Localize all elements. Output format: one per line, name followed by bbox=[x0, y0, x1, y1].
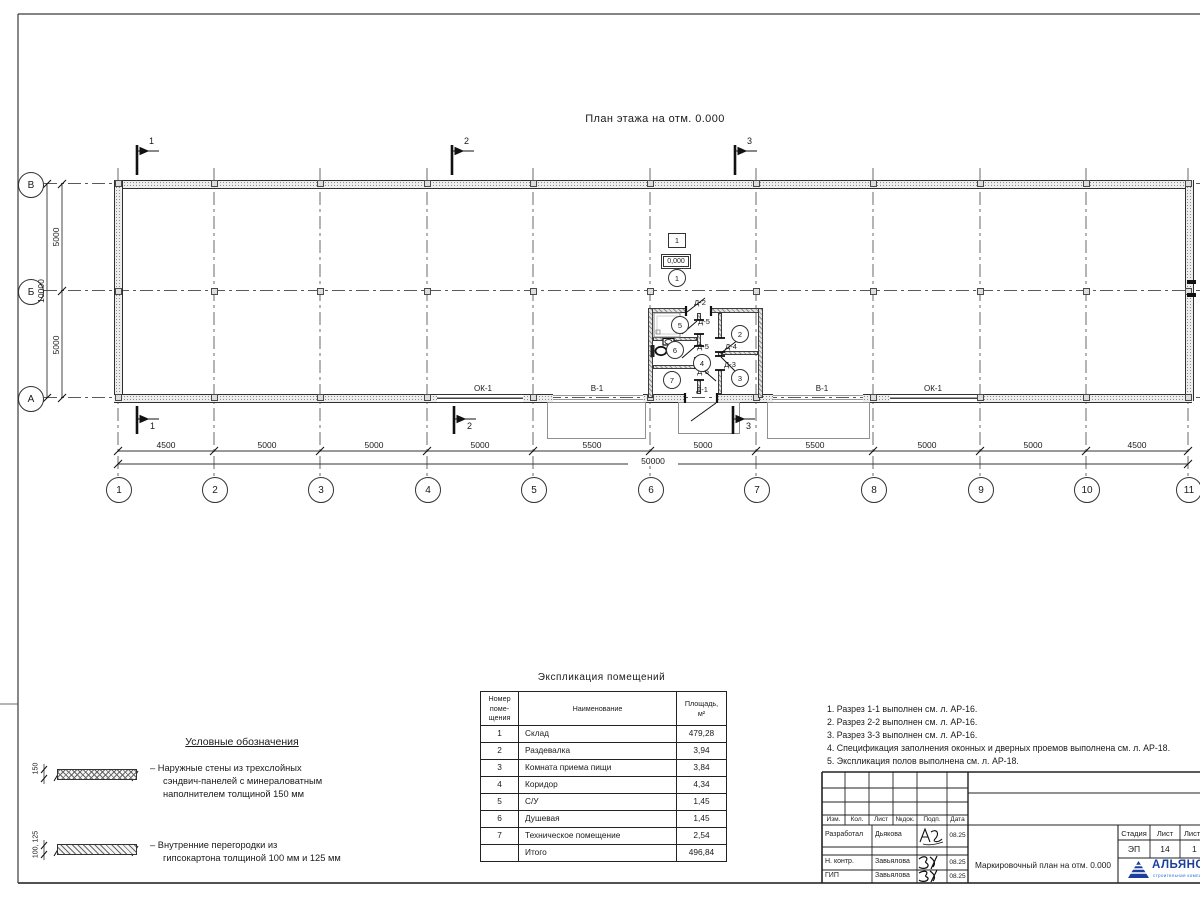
logo-subtitle: строительная компания bbox=[1153, 873, 1200, 878]
elevation-marker: 0,000 bbox=[661, 254, 691, 269]
table-row: 7 Техническое помещение 2,54 bbox=[481, 828, 727, 845]
room-name-cell: Раздевалка bbox=[519, 743, 677, 760]
floor-type-marker: 1 bbox=[668, 233, 686, 248]
axis-circle-row-a: А bbox=[18, 386, 44, 412]
tb-stage-value: ЭП bbox=[1118, 844, 1150, 854]
legend-dim-100-125: 100, 125 bbox=[33, 817, 40, 873]
signature bbox=[916, 854, 946, 870]
tb-date: 08.25 bbox=[947, 859, 968, 866]
alliance-logo-icon bbox=[1128, 860, 1149, 879]
room-name-cell: Склад bbox=[519, 726, 677, 743]
door-label-d4: Д-4 bbox=[711, 342, 751, 351]
dim-label: 5000 bbox=[344, 440, 404, 450]
column bbox=[424, 288, 431, 295]
axis-circle-7: 7 bbox=[744, 477, 770, 503]
gate-label: В-1 bbox=[577, 384, 617, 393]
tb-role: Разработал bbox=[825, 831, 863, 838]
note: 3. Разрез 3-3 выполнен см. л. АР-16. bbox=[827, 729, 1199, 742]
room-number-cell: 1 bbox=[481, 726, 519, 743]
column bbox=[530, 288, 537, 295]
wall-bottom-seg bbox=[114, 394, 437, 403]
axis-letter: В bbox=[28, 180, 35, 191]
tb-sheets-value: 1 bbox=[1192, 844, 1200, 854]
partition bbox=[758, 308, 763, 398]
section-label-bottom-1: 1 bbox=[150, 421, 155, 431]
tb-sheet-value: 14 bbox=[1150, 844, 1180, 854]
tb-date: 08.25 bbox=[947, 873, 968, 880]
axis-number: 4 bbox=[425, 485, 431, 496]
total-area-cell: 496,84 bbox=[677, 845, 727, 862]
column bbox=[1185, 394, 1192, 401]
section-label-bottom-3: 3 bbox=[746, 421, 751, 431]
column bbox=[1083, 394, 1090, 401]
room-schedule-table: Номер поме- щения Наименование Площадь, … bbox=[480, 691, 727, 862]
door-label-d5: Д-5 bbox=[684, 317, 724, 326]
column bbox=[1083, 180, 1090, 187]
axis-circle-1: 1 bbox=[106, 477, 132, 503]
axis-circle-9: 9 bbox=[968, 477, 994, 503]
column bbox=[977, 180, 984, 187]
schedule-col-area: Площадь, м² bbox=[677, 692, 727, 726]
table-row: 6 Душевая 1,45 bbox=[481, 811, 727, 828]
axis-letter: А bbox=[28, 394, 35, 405]
note: 4. Спецификация заполнения оконных и две… bbox=[827, 742, 1199, 755]
gate-label: В-1 bbox=[802, 384, 842, 393]
notes-block: 1. Разрез 1-1 выполнен см. л. АР-16. 2. … bbox=[827, 703, 1199, 768]
column bbox=[115, 288, 122, 295]
column bbox=[211, 394, 218, 401]
legend-wall-sample-partition bbox=[57, 844, 137, 855]
dim-label: 4500 bbox=[1107, 440, 1167, 450]
tb-role: Н. контр. bbox=[825, 858, 854, 865]
column bbox=[870, 394, 877, 401]
room-area-cell: 3,84 bbox=[677, 760, 727, 777]
dim-label: 5000 bbox=[450, 440, 510, 450]
legend-item-partitions: – Внутренние перегородки из гипсокартона… bbox=[150, 839, 413, 865]
room-number-cell: 2 bbox=[481, 743, 519, 760]
column bbox=[1185, 180, 1192, 187]
dim-label: 5000 bbox=[1003, 440, 1063, 450]
dim-label: 5000 bbox=[237, 440, 297, 450]
axis-circle-3: 3 bbox=[308, 477, 334, 503]
axis-number: 8 bbox=[871, 485, 877, 496]
room-number-cell: 7 bbox=[481, 828, 519, 845]
axis-circle-2: 2 bbox=[202, 477, 228, 503]
drawing-sheet: План этажа на отм. 0.000 1 2 3 1 2 3 В Б… bbox=[0, 0, 1200, 900]
column bbox=[317, 180, 324, 187]
axis-number: 11 bbox=[1184, 485, 1194, 496]
section-label-top-2: 2 bbox=[464, 136, 469, 146]
axis-circle-10: 10 bbox=[1074, 477, 1100, 503]
column bbox=[115, 394, 122, 401]
note: 1. Разрез 1-1 выполнен см. л. АР-16. bbox=[827, 703, 1199, 716]
tb-col-list: Лист bbox=[869, 816, 893, 823]
column bbox=[870, 288, 877, 295]
room-number: 6 bbox=[673, 346, 677, 355]
column bbox=[317, 288, 324, 295]
window-ok1-left bbox=[437, 394, 523, 403]
dim-label: 5500 bbox=[562, 440, 622, 450]
room-name-cell: Комната приема пищи bbox=[519, 760, 677, 777]
column bbox=[647, 180, 654, 187]
tb-col-podp: Подп. bbox=[917, 816, 947, 823]
table-row: 5 С/У 1,45 bbox=[481, 794, 727, 811]
axis-circle-5: 5 bbox=[521, 477, 547, 503]
dim-label: 5500 bbox=[785, 440, 845, 450]
plan-title: План этажа на отм. 0.000 bbox=[515, 113, 795, 125]
axis-circle-4: 4 bbox=[415, 477, 441, 503]
door-label-d2: Д-2 bbox=[680, 298, 720, 307]
column bbox=[424, 394, 431, 401]
axis-number: 1 bbox=[116, 485, 122, 496]
room-number-cell bbox=[481, 845, 519, 862]
room-circle-1: 1 bbox=[668, 269, 686, 287]
section-label-top-3: 3 bbox=[747, 136, 752, 146]
schedule-col-number: Номер поме- щения bbox=[481, 692, 519, 726]
axis-letter: Б bbox=[28, 287, 35, 298]
tb-col-kol: Кол. bbox=[845, 816, 869, 823]
column bbox=[530, 180, 537, 187]
tb-col-data: Дата bbox=[947, 816, 968, 823]
column bbox=[753, 288, 760, 295]
column bbox=[115, 180, 122, 187]
column bbox=[870, 180, 877, 187]
tb-sheets-label: Листов bbox=[1184, 829, 1200, 838]
window-label: ОК-1 bbox=[913, 384, 953, 393]
room-number-cell: 6 bbox=[481, 811, 519, 828]
column bbox=[977, 288, 984, 295]
axis-number: 2 bbox=[212, 485, 218, 496]
legend-wall-sample-exterior bbox=[57, 769, 137, 780]
dim-label: 5000 bbox=[673, 440, 733, 450]
column bbox=[211, 180, 218, 187]
note: 2. Разрез 2-2 выполнен см. л. АР-16. bbox=[827, 716, 1199, 729]
partition bbox=[648, 308, 653, 398]
tb-name: Завьялова bbox=[875, 872, 910, 879]
tb-date: 08.25 bbox=[947, 832, 968, 839]
room-number: 3 bbox=[738, 374, 742, 383]
room-circle-7: 7 bbox=[663, 371, 681, 389]
table-row-total: Итого 496,84 bbox=[481, 845, 727, 862]
room-number: 2 bbox=[738, 330, 742, 339]
room-circle-6: 6 bbox=[666, 341, 684, 359]
section-label-top-1: 1 bbox=[149, 136, 154, 146]
legend-item-exterior-walls: – Наружные стены из трехслойных сэндвич-… bbox=[150, 762, 403, 801]
room-area-cell: 4,34 bbox=[677, 777, 727, 794]
tb-stage-label: Стадия bbox=[1118, 829, 1150, 838]
table-row: 2 Раздевалка 3,94 bbox=[481, 743, 727, 760]
column bbox=[647, 288, 654, 295]
column bbox=[1185, 288, 1192, 295]
column bbox=[317, 394, 324, 401]
room-number-cell: 4 bbox=[481, 777, 519, 794]
room-area-cell: 1,45 bbox=[677, 811, 727, 828]
dim-label-left: 5000 bbox=[51, 325, 61, 365]
axis-circle-8: 8 bbox=[861, 477, 887, 503]
axis-number: 5 bbox=[531, 485, 537, 496]
logo-text: АЛЬЯНС bbox=[1152, 859, 1200, 871]
section-label-bottom-2: 2 bbox=[467, 421, 472, 431]
column bbox=[211, 288, 218, 295]
door-label-d1: Д-1 bbox=[682, 385, 722, 394]
axis-circle-row-v: В bbox=[18, 172, 44, 198]
room-circle-4: 4 bbox=[693, 354, 711, 372]
room-circle-2: 2 bbox=[731, 325, 749, 343]
door-label-d3: Д-3 bbox=[710, 360, 750, 369]
room-name-cell: Коридор bbox=[519, 777, 677, 794]
tb-name: Завьялова bbox=[875, 858, 910, 865]
signature bbox=[916, 869, 946, 883]
axis-number: 6 bbox=[648, 485, 654, 496]
tb-doc-title: Маркировочный план на отм. 0.000 bbox=[968, 860, 1118, 870]
axis-number: 10 bbox=[1081, 485, 1092, 496]
schedule-title: Экспликация помещений bbox=[480, 672, 723, 683]
axis-circle-6: 6 bbox=[638, 477, 664, 503]
room-number: 7 bbox=[670, 376, 674, 385]
dim-total-label: 50000 bbox=[628, 456, 678, 466]
column bbox=[530, 394, 537, 401]
axis-number: 7 bbox=[754, 485, 760, 496]
room-number: 5 bbox=[678, 321, 682, 330]
dim-label-left: 5000 bbox=[51, 217, 61, 257]
tb-sheet-label: Лист bbox=[1150, 829, 1180, 838]
room-name-cell: Техническое помещение bbox=[519, 828, 677, 845]
note: 5. Экспликация полов выполнена см. л. АР… bbox=[827, 755, 1199, 768]
dim-total-left-label: 10000 bbox=[36, 269, 46, 313]
partition bbox=[722, 351, 758, 355]
tb-col-izm: Изм. bbox=[822, 816, 845, 823]
room-area-cell: 3,94 bbox=[677, 743, 727, 760]
tb-col-doc: №док. bbox=[893, 816, 917, 823]
room-name-cell: Душевая bbox=[519, 811, 677, 828]
table-row: 3 Комната приема пищи 3,84 bbox=[481, 760, 727, 777]
dim-label: 4500 bbox=[136, 440, 196, 450]
dim-label: 5000 bbox=[897, 440, 957, 450]
room-name-cell: С/У bbox=[519, 794, 677, 811]
axis-number: 9 bbox=[978, 485, 984, 496]
ramp-gate-left bbox=[547, 402, 646, 439]
tb-role: ГИП bbox=[825, 872, 839, 879]
room-number: 4 bbox=[700, 359, 704, 368]
room-number-cell: 3 bbox=[481, 760, 519, 777]
ramp-gate-right bbox=[767, 402, 870, 439]
axis-number: 3 bbox=[318, 485, 324, 496]
table-row: 1 Склад 479,28 bbox=[481, 726, 727, 743]
room-number-cell: 5 bbox=[481, 794, 519, 811]
schedule-col-name: Наименование bbox=[519, 692, 677, 726]
tb-name: Дьякова bbox=[875, 831, 902, 838]
room-circle-5: 5 bbox=[671, 316, 689, 334]
room-area-cell: 2,54 bbox=[677, 828, 727, 845]
room-number: 1 bbox=[675, 274, 679, 283]
legend-dim-150: 150 bbox=[33, 749, 40, 789]
window-label: ОК-1 bbox=[463, 384, 503, 393]
axis-circle-11: 11 bbox=[1176, 477, 1200, 503]
room-area-cell: 479,28 bbox=[677, 726, 727, 743]
column bbox=[424, 180, 431, 187]
room-circle-3: 3 bbox=[731, 369, 749, 387]
legend-title: Условные обозначения bbox=[142, 736, 342, 748]
table-row: 4 Коридор 4,34 bbox=[481, 777, 727, 794]
porch-door bbox=[678, 402, 740, 434]
column bbox=[753, 180, 760, 187]
signature bbox=[916, 826, 946, 846]
partition bbox=[648, 308, 686, 313]
column bbox=[977, 394, 984, 401]
room-area-cell: 1,45 bbox=[677, 794, 727, 811]
total-label-cell: Итого bbox=[519, 845, 677, 862]
column bbox=[1083, 288, 1090, 295]
window-ok1-right bbox=[890, 394, 977, 403]
